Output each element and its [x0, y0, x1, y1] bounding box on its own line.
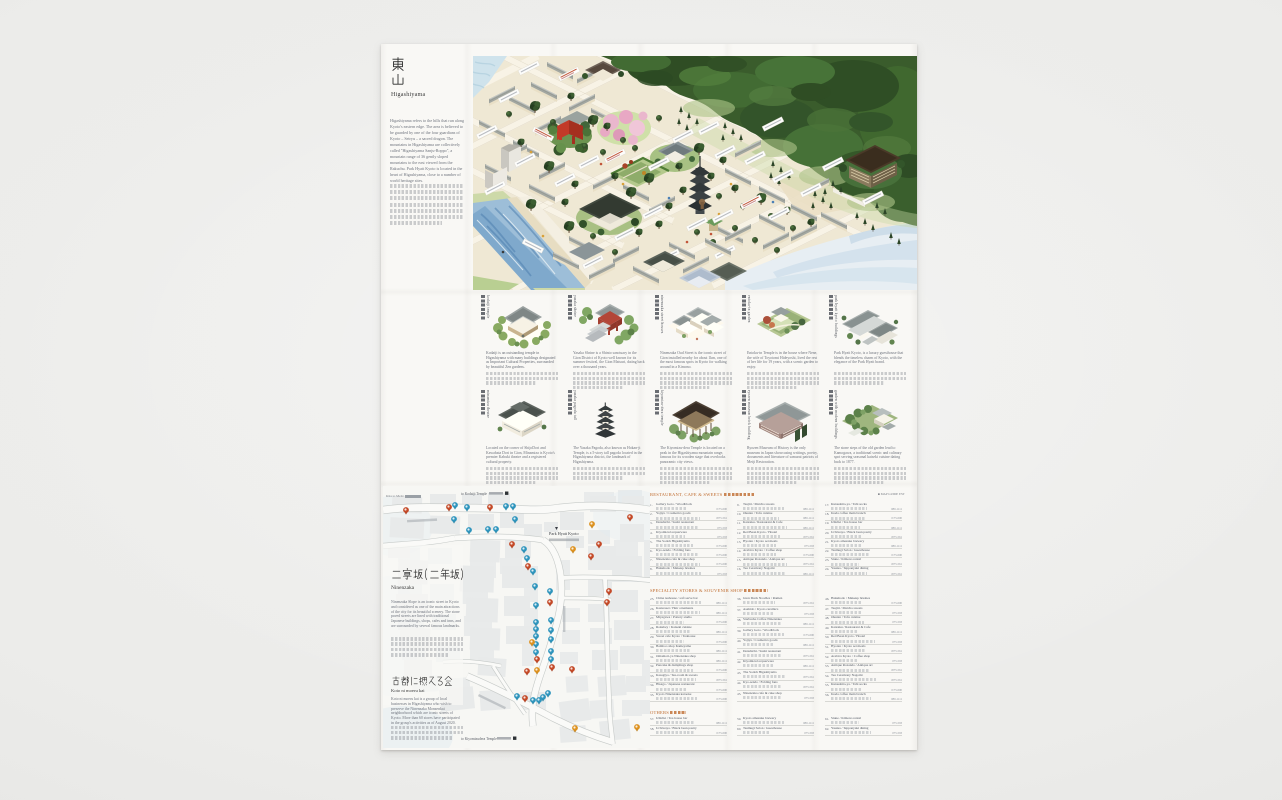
svg-text:to Kodaiji Temple: to Kodaiji Temple: [461, 492, 487, 496]
svg-text:to Kiyomizudera Temple: to Kiyomizudera Temple: [461, 737, 497, 741]
svg-text:Park Hyatt Kyoto: Park Hyatt Kyoto: [549, 531, 579, 536]
